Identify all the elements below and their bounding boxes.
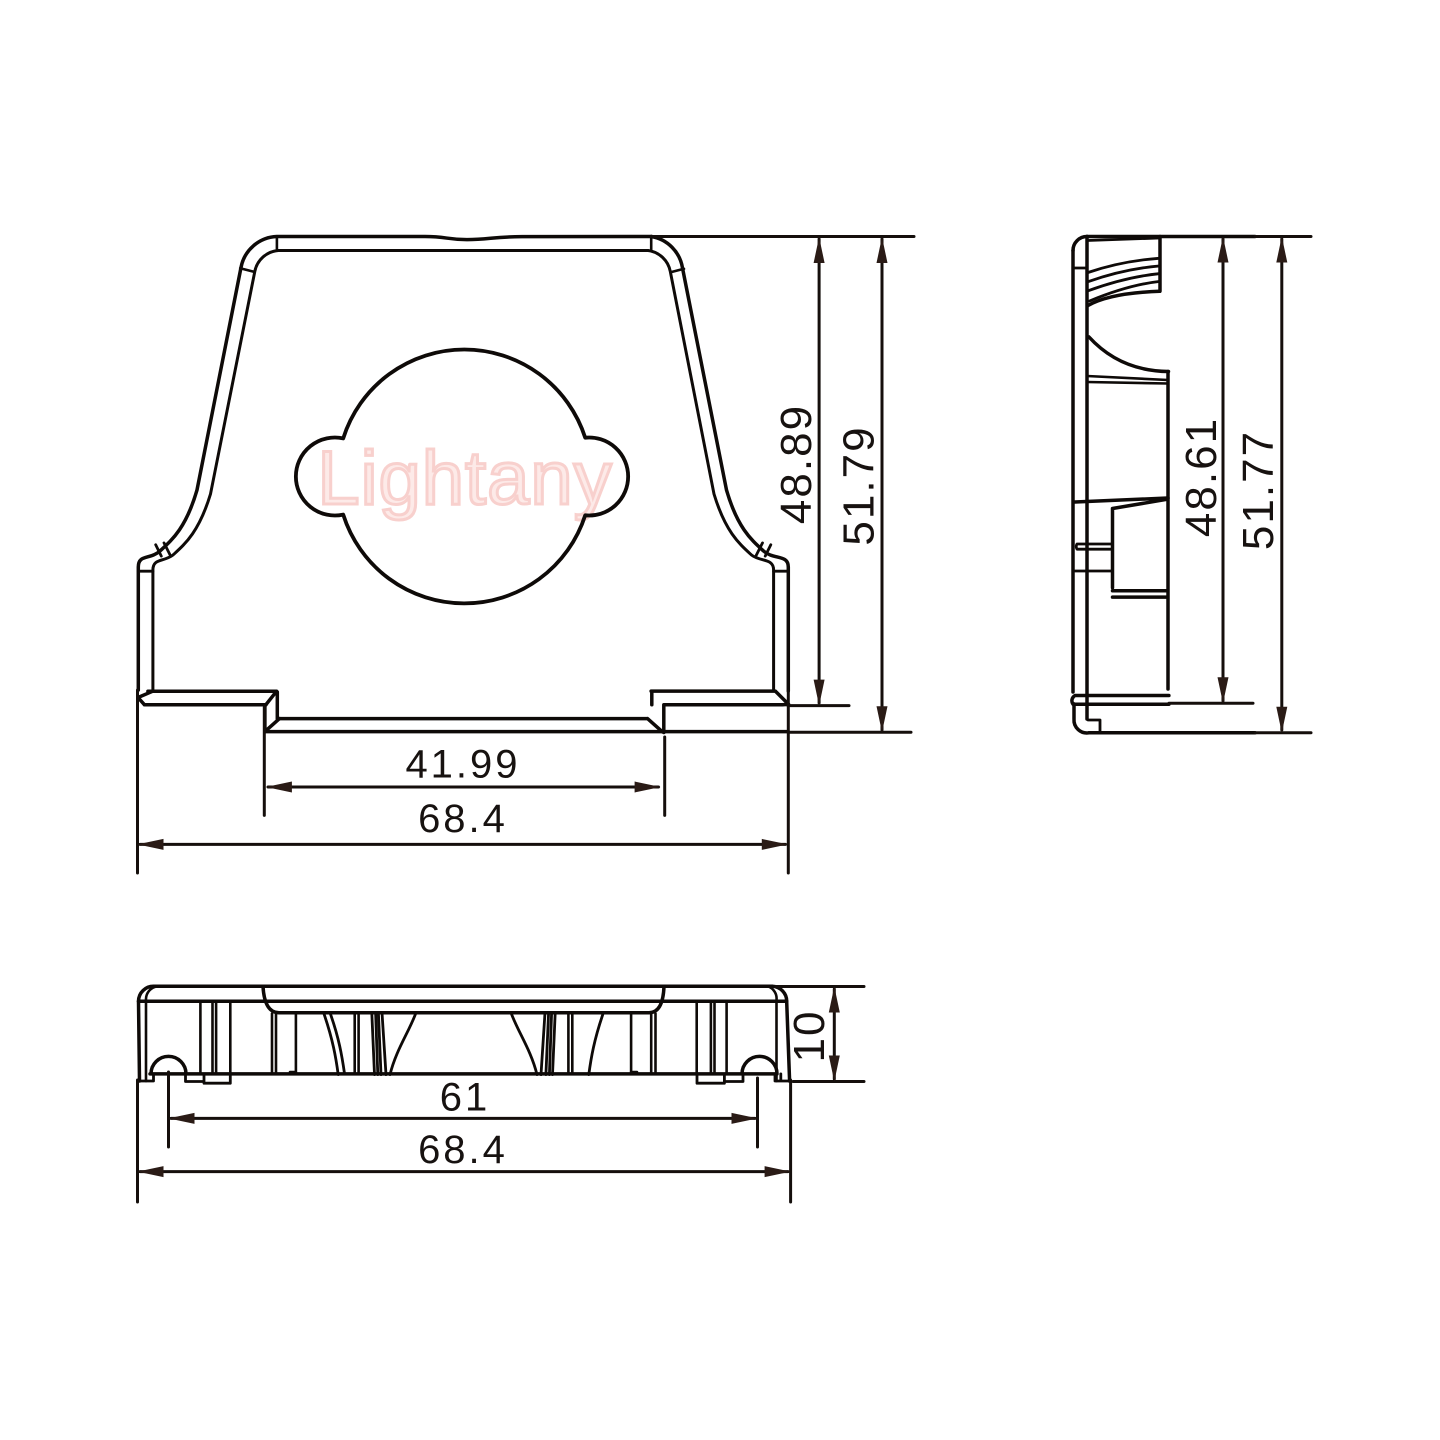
svg-text:51.79: 51.79 (835, 425, 884, 545)
svg-text:68.4: 68.4 (418, 1128, 508, 1172)
svg-text:51.77: 51.77 (1234, 430, 1283, 550)
svg-text:Lightany: Lightany (317, 436, 612, 521)
svg-text:48.89: 48.89 (772, 404, 821, 524)
svg-text:41.99: 41.99 (405, 743, 520, 787)
svg-text:61: 61 (440, 1076, 491, 1120)
svg-text:48.61: 48.61 (1177, 417, 1226, 537)
svg-text:68.4: 68.4 (418, 797, 508, 841)
svg-text:10: 10 (785, 1010, 834, 1063)
